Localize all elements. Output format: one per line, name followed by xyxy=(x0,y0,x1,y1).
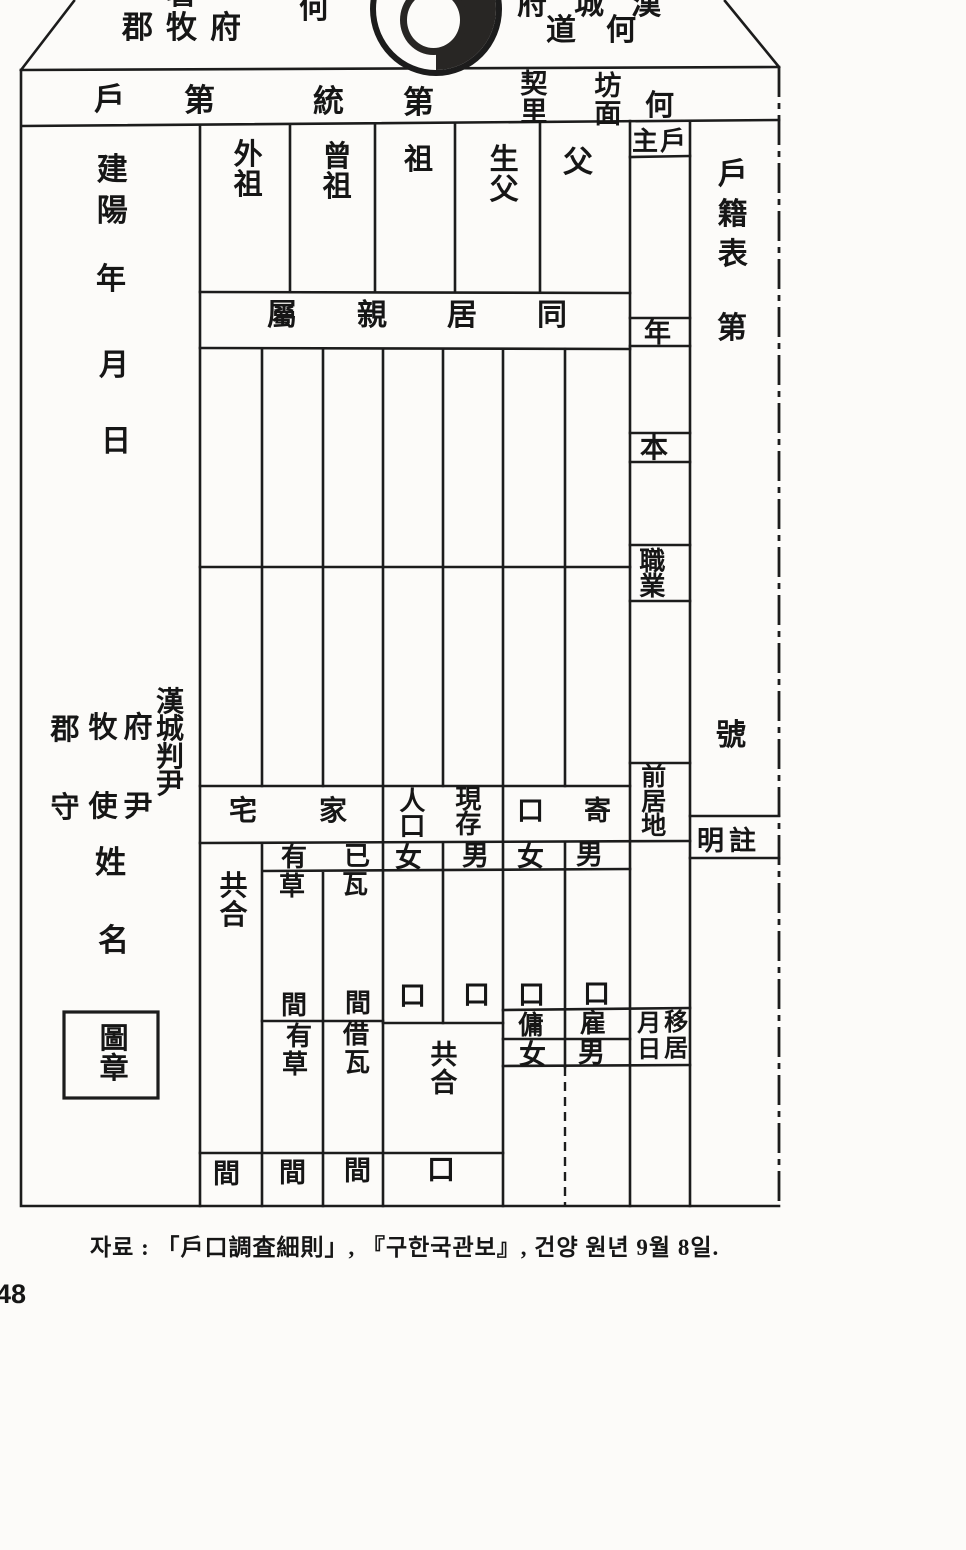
official-gunsu: 郡守 xyxy=(48,691,82,847)
population-male-3: 男 xyxy=(578,1040,605,1067)
col-birth-father: 生父 xyxy=(487,145,521,206)
surname-label: 姓 xyxy=(95,847,126,878)
band-tong-label: 統 xyxy=(313,86,344,117)
population-count-box-4: 口 xyxy=(583,981,610,1008)
band-ha-label: 何 xyxy=(645,92,674,121)
housing-header: 宅家 xyxy=(229,798,409,826)
population-employed-yong: 傭 xyxy=(518,1013,544,1039)
register-number-prefix: 第 xyxy=(717,314,747,344)
housing-rent-thatch-bottom: 草 xyxy=(282,1052,308,1078)
flap-seo-label: 署 xyxy=(166,0,196,10)
housing-own-thatch-bottom: 草 xyxy=(279,874,305,900)
col-father: 父 xyxy=(563,148,593,178)
col-grandfather: 祖 xyxy=(404,146,433,175)
field-move-date-right: 移居 xyxy=(662,1010,690,1063)
flap-district-label: 郡牧府 xyxy=(122,12,254,43)
official-buyun: 府尹 xyxy=(121,689,155,847)
housing-own-thatch-top: 有 xyxy=(281,845,307,871)
band-ho-label: 戶 xyxy=(94,84,125,115)
population-header-gigu: 口寄 xyxy=(517,798,651,825)
cohabiting-relatives-row: 屬親居同 xyxy=(267,301,627,331)
housing-total-label: 共合 xyxy=(217,872,250,931)
population-female-3: 女 xyxy=(519,1042,546,1069)
population-total-box: 口 xyxy=(427,1157,455,1185)
col-great-grandfather: 曾祖 xyxy=(320,142,354,203)
band-je1-label: 第 xyxy=(184,85,215,116)
housing-kan-total: 間 xyxy=(213,1161,240,1188)
housing-own-tile-bottom: 瓦 xyxy=(342,872,368,898)
population-count-box-2: 口 xyxy=(463,982,490,1009)
col-household-head: 主戶 xyxy=(632,129,688,155)
flap-ha-label: 何 xyxy=(299,0,329,24)
flap-hado-label: 道何 xyxy=(546,16,666,46)
official-moksa: 牧使 xyxy=(86,689,120,847)
field-move-date-left: 月日 xyxy=(635,1011,663,1064)
col-maternal-grandfather: 外祖 xyxy=(231,140,265,201)
page-number: 48 xyxy=(0,1281,26,1308)
register-note: 明註 xyxy=(697,828,761,855)
population-female-2: 女 xyxy=(517,844,544,871)
field-occupation: 職業 xyxy=(637,549,668,600)
register-number-suffix: 號 xyxy=(716,721,746,751)
seal-box-label: 圖章 xyxy=(97,1024,131,1085)
official-hanseong-panyun: 漢城判尹 xyxy=(153,689,187,799)
housing-rent-thatch-top: 有 xyxy=(286,1024,312,1050)
housing-kan-2: 間 xyxy=(345,991,371,1017)
population-count-box-1: 口 xyxy=(399,983,426,1010)
day-label: 日 xyxy=(101,427,131,457)
given-name-label: 名 xyxy=(98,925,129,956)
population-count-box-3: 口 xyxy=(518,982,545,1009)
scanned-document-page: 署 郡牧府 何 府城漢 道何 戶 第 統 第 契里 坊面 何 建陽 年 月 日 … xyxy=(0,0,966,1550)
field-age: 年 xyxy=(644,320,671,347)
housing-rent-tile-top: 借 xyxy=(343,1022,369,1048)
housing-kan-3: 間 xyxy=(279,1160,306,1187)
month-label: 月 xyxy=(99,351,129,381)
housing-kan-1: 間 xyxy=(281,993,307,1019)
population-header-hyeonjon: 現存 xyxy=(453,787,484,838)
band-je2-label: 第 xyxy=(403,87,434,118)
source-caption: 자료 : 「戶口調査細則」, 『구한국관보』, 건양 원년 9월 8일. xyxy=(90,1236,719,1259)
population-header-ingu: 人口 xyxy=(397,789,428,840)
housing-rent-tile-bottom: 瓦 xyxy=(344,1050,370,1076)
housing-own-tile-top: 已 xyxy=(344,844,370,870)
population-female-1: 女 xyxy=(395,845,422,872)
band-bangmyeon-label: 坊面 xyxy=(592,72,624,129)
field-origin: 本 xyxy=(640,435,668,463)
year-label: 年 xyxy=(96,265,126,295)
register-title: 戶籍表 xyxy=(715,155,750,276)
era-label: 建陽 xyxy=(94,150,131,232)
band-gyeri-label: 契里 xyxy=(518,70,550,127)
population-male-1: 男 xyxy=(462,843,489,870)
housing-kan-4: 間 xyxy=(344,1158,371,1185)
population-male-2: 男 xyxy=(576,842,603,869)
population-employed-go: 雇 xyxy=(580,1011,606,1037)
population-total-label: 共合 xyxy=(428,1041,460,1098)
